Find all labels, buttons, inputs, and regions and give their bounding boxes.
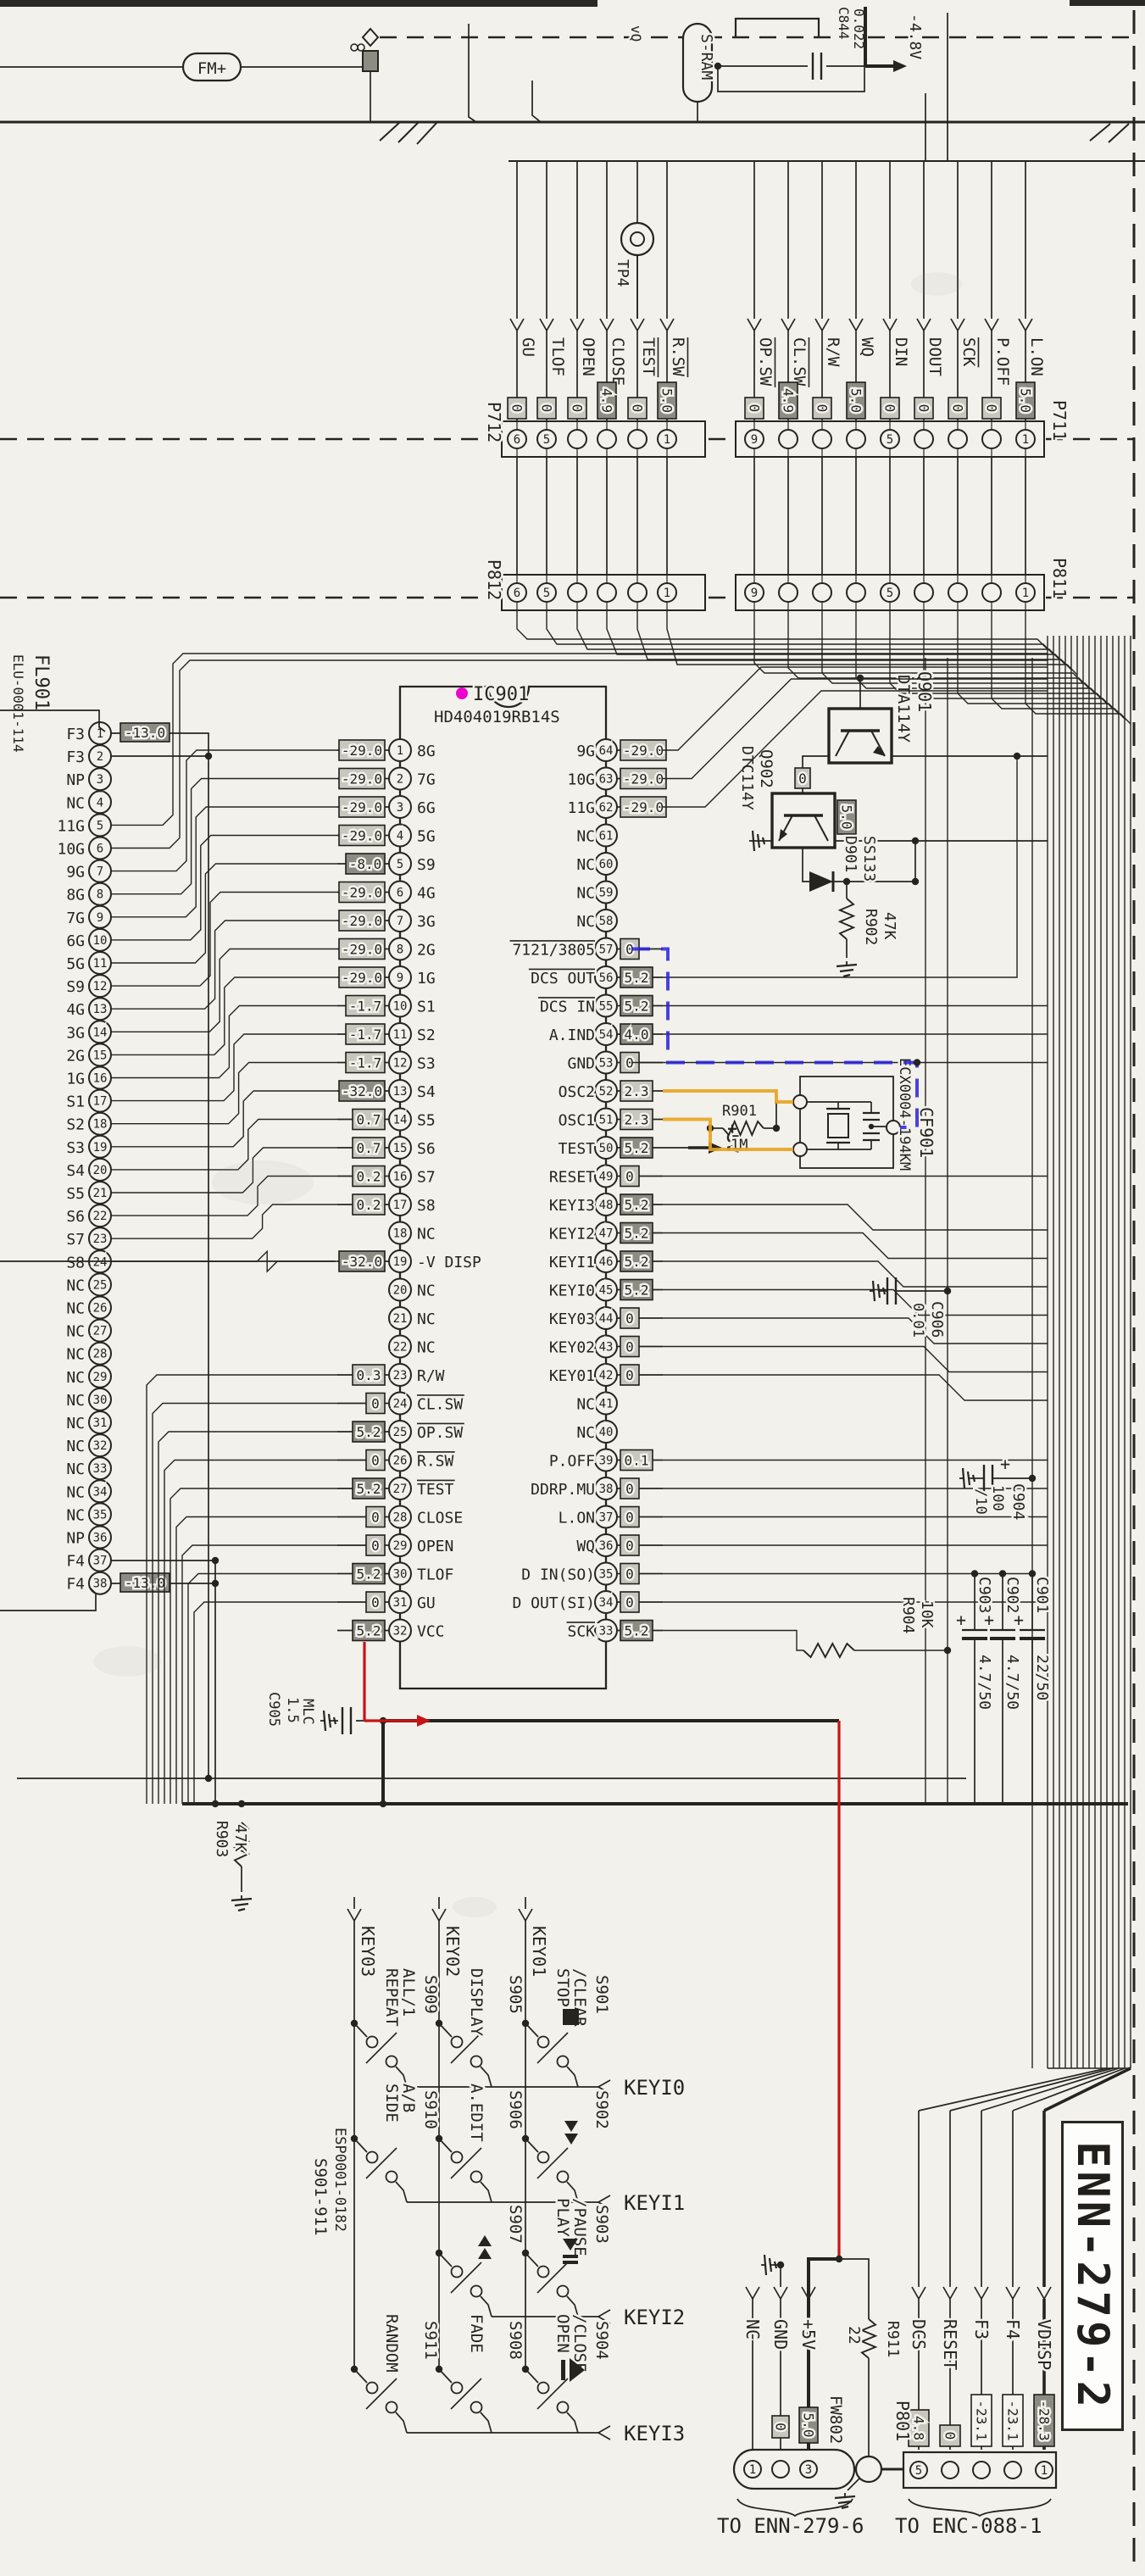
svg-text:OPEN: OPEN	[579, 337, 598, 376]
svg-text:DCS: DCS	[909, 2319, 929, 2350]
svg-text:KEY02: KEY02	[442, 1926, 463, 1977]
svg-text:NC: NC	[742, 2319, 763, 2340]
svg-text:25: 25	[393, 1426, 408, 1439]
svg-text:3G: 3G	[66, 1024, 85, 1042]
svg-text:KEY03: KEY03	[549, 1310, 595, 1328]
svg-text:20: 20	[393, 1284, 408, 1298]
svg-text:2.3: 2.3	[625, 1111, 649, 1127]
svg-text:26: 26	[393, 1455, 408, 1468]
svg-text:23: 23	[93, 1232, 108, 1246]
svg-text:R903: R903	[213, 1821, 231, 1857]
svg-text:33: 33	[599, 1625, 614, 1639]
svg-text:22/50: 22/50	[1033, 1655, 1051, 1700]
schematic-page: FM+vQS-RAMC8440.022-4.8VGU0TLOF0OPEN0CLO…	[0, 0, 1145, 2576]
svg-text:VDISP: VDISP	[1034, 2319, 1054, 2370]
svg-text:-28.3: -28.3	[1036, 2400, 1052, 2440]
svg-text:-23.1: -23.1	[1004, 2400, 1020, 2440]
svg-text:L.ON: L.ON	[559, 1510, 595, 1527]
svg-text:21: 21	[93, 1187, 108, 1200]
svg-text:KEYI1: KEYI1	[624, 2191, 685, 2215]
svg-text:4.7/50: 4.7/50	[975, 1655, 993, 1710]
sheet-title: ENN-279-2	[1067, 2141, 1118, 2411]
svg-text:NC: NC	[66, 1506, 85, 1524]
svg-text:0: 0	[625, 1481, 634, 1497]
svg-text:0: 0	[625, 1367, 634, 1383]
svg-text:S8: S8	[66, 1254, 85, 1271]
svg-text:A.IND: A.IND	[549, 1027, 595, 1044]
svg-text:NC: NC	[66, 1277, 85, 1294]
svg-text:9: 9	[751, 587, 758, 600]
svg-text:19: 19	[393, 1255, 408, 1269]
svg-text:0: 0	[371, 1509, 380, 1525]
svg-text:0: 0	[625, 1509, 634, 1525]
svg-text:F4: F4	[1003, 2319, 1023, 2340]
svg-text:9G: 9G	[66, 864, 85, 882]
svg-text:S6: S6	[417, 1140, 436, 1158]
svg-text:GND: GND	[770, 2319, 791, 2350]
svg-text:1G: 1G	[66, 1071, 85, 1088]
svg-text:1: 1	[664, 433, 670, 447]
svg-text:51: 51	[599, 1114, 614, 1127]
svg-text:F4: F4	[66, 1553, 85, 1571]
svg-text:SIDE: SIDE	[382, 2084, 401, 2123]
svg-text:P.OFF: P.OFF	[993, 337, 1012, 386]
svg-text:1: 1	[664, 587, 670, 600]
svg-text:S907: S907	[506, 2205, 525, 2244]
svg-text:ESP0001-0182: ESP0001-0182	[331, 2128, 348, 2232]
svg-text:38: 38	[93, 1577, 108, 1591]
svg-text:4G: 4G	[66, 1001, 85, 1019]
svg-text:-29.0: -29.0	[623, 799, 664, 815]
svg-text:CLOSE: CLOSE	[417, 1510, 463, 1527]
svg-text:0.3: 0.3	[357, 1367, 381, 1383]
svg-text:PLAY: PLAY	[553, 2198, 572, 2237]
svg-text:KEYI0: KEYI0	[624, 2076, 685, 2100]
tp4: TP4	[614, 223, 653, 319]
svg-text:7121/3805: 7121/3805	[512, 942, 595, 960]
svg-text:OPEN: OPEN	[553, 2314, 572, 2353]
svg-text:-1.7: -1.7	[349, 1027, 382, 1043]
svg-text:C905: C905	[265, 1692, 282, 1727]
svg-text:KEYI0: KEYI0	[549, 1282, 595, 1300]
svg-text:5: 5	[887, 587, 893, 600]
svg-text:KEYI1: KEYI1	[549, 1254, 595, 1271]
svg-text:RESET: RESET	[549, 1169, 595, 1187]
connector-p812: P812651	[484, 457, 705, 610]
key-switch-S911: RANDOMS911	[351, 2314, 440, 2433]
svg-text:P801: P801	[892, 2401, 913, 2441]
svg-text:4: 4	[397, 830, 403, 843]
svg-text:DOUT: DOUT	[925, 337, 944, 376]
svg-text:39: 39	[599, 1455, 614, 1468]
svg-text:GU: GU	[417, 1594, 436, 1612]
svg-text:2G: 2G	[417, 942, 436, 960]
svg-text:NC: NC	[66, 1438, 85, 1455]
svg-text:-29.0: -29.0	[342, 827, 382, 843]
svg-text:SCK: SCK	[567, 1623, 595, 1641]
svg-text:0: 0	[881, 404, 898, 413]
key-switch-S902: S902	[522, 2090, 611, 2202]
svg-text:47: 47	[599, 1227, 614, 1241]
key-switch-S905: DISPLAYS905	[436, 1968, 525, 2087]
key-switch-S904: OPEN/CLOSES904	[522, 2314, 611, 2433]
svg-text:NC: NC	[576, 885, 595, 903]
svg-text:10: 10	[93, 934, 108, 948]
svg-text:11G: 11G	[57, 817, 85, 835]
svg-text:29: 29	[393, 1539, 408, 1553]
svg-text:R902: R902	[862, 909, 880, 945]
svg-text:-29.0: -29.0	[342, 970, 382, 986]
svg-text:3: 3	[97, 773, 103, 787]
svg-text:TEST: TEST	[417, 1481, 454, 1499]
svg-text:S901: S901	[592, 1975, 611, 2014]
svg-text:SS133: SS133	[860, 836, 878, 882]
svg-text:48: 48	[599, 1199, 614, 1212]
svg-text:0.01: 0.01	[909, 1303, 926, 1338]
svg-text:9: 9	[751, 433, 758, 447]
svg-text:37: 37	[599, 1511, 614, 1525]
svg-text:NC: NC	[576, 1396, 595, 1414]
key-switch-S906: A.EDITS906	[436, 2084, 525, 2202]
svg-text:8: 8	[397, 943, 403, 957]
svg-text:R904: R904	[899, 1597, 917, 1633]
svg-text:TLOF: TLOF	[548, 337, 567, 376]
svg-text:P812: P812	[484, 559, 504, 600]
caps-right: 0.01C906+/10100C904+C9034.7/50+C9024.7/5…	[870, 1277, 1051, 1804]
svg-text:21: 21	[393, 1312, 408, 1326]
svg-text:DIN: DIN	[892, 337, 910, 366]
svg-text:2G: 2G	[66, 1047, 85, 1065]
power-rails	[17, 1717, 1128, 1807]
svg-text:42: 42	[599, 1369, 614, 1383]
svg-text:0: 0	[746, 404, 762, 413]
svg-text:0.1: 0.1	[625, 1452, 649, 1468]
svg-text:ECX0004-194KM: ECX0004-194KM	[896, 1058, 913, 1171]
svg-text:S905: S905	[506, 1975, 525, 2014]
svg-text:NC: NC	[66, 1346, 85, 1364]
svg-text:5.2: 5.2	[357, 1566, 381, 1582]
svg-text:S2: S2	[66, 1116, 85, 1134]
svg-text:NC: NC	[66, 1369, 85, 1387]
svg-text:ELU-0001-114: ELU-0001-114	[10, 654, 26, 753]
svg-text:5.2: 5.2	[625, 1197, 649, 1213]
svg-text:-23.1: -23.1	[973, 2400, 989, 2440]
key-switch-S907: S907	[436, 2205, 525, 2317]
svg-text:0: 0	[915, 404, 931, 413]
svg-text:S903: S903	[592, 2205, 611, 2244]
svg-text:15: 15	[93, 1049, 108, 1062]
connector-p711: OP.SW0CL.SW4.9R/W0WQ5.0DIN0DOUT0SCK0P.OF…	[736, 161, 1070, 457]
svg-text:S7: S7	[417, 1169, 436, 1187]
svg-text:C901: C901	[1033, 1577, 1051, 1613]
svg-text:45: 45	[599, 1284, 614, 1298]
svg-text:C904: C904	[1009, 1483, 1027, 1520]
svg-text:27: 27	[393, 1483, 408, 1496]
svg-text:12: 12	[93, 980, 108, 993]
scan-artifacts	[93, 272, 962, 1917]
svg-text:S9: S9	[417, 856, 436, 874]
key-switch-S909: REPEATALL/1S909	[351, 1968, 440, 2087]
svg-text:NP: NP	[66, 771, 85, 789]
svg-text:C902: C902	[1003, 1577, 1021, 1613]
svg-text:/10: /10	[972, 1488, 989, 1515]
svg-text:OSC1: OSC1	[559, 1112, 595, 1130]
svg-text:0: 0	[625, 1310, 634, 1327]
svg-text:20: 20	[93, 1164, 108, 1177]
svg-text:-8.0: -8.0	[349, 856, 382, 872]
svg-text:S5: S5	[417, 1112, 436, 1130]
svg-text:F3: F3	[66, 726, 85, 743]
svg-text:P811: P811	[1049, 558, 1070, 598]
svg-text:61: 61	[599, 830, 614, 843]
svg-text:0: 0	[942, 2432, 958, 2440]
svg-text:10K: 10K	[918, 1600, 936, 1628]
svg-text:S5: S5	[66, 1185, 85, 1203]
svg-text:56: 56	[599, 971, 614, 985]
svg-text:5.2: 5.2	[625, 998, 649, 1014]
svg-text:24: 24	[93, 1255, 108, 1269]
svg-text:0.2: 0.2	[357, 1197, 381, 1213]
svg-text:C844: C844	[836, 7, 852, 40]
svg-text:2: 2	[397, 773, 403, 787]
svg-text:9: 9	[397, 971, 403, 985]
svg-text:KEYI2: KEYI2	[549, 1226, 595, 1243]
svg-text:S902: S902	[592, 2090, 611, 2129]
svg-text:MLC: MLC	[299, 1699, 316, 1725]
svg-text:34: 34	[93, 1485, 108, 1499]
svg-text:KEY02: KEY02	[549, 1339, 595, 1357]
svg-text:DTC114Y: DTC114Y	[738, 746, 756, 810]
svg-text:RANDOM: RANDOM	[382, 2314, 401, 2373]
svg-text:R/W: R/W	[824, 337, 842, 367]
svg-text:NC: NC	[417, 1339, 436, 1357]
svg-text:5.2: 5.2	[357, 1481, 381, 1497]
svg-text:7G: 7G	[66, 910, 85, 927]
svg-text:33: 33	[93, 1462, 108, 1476]
svg-text:OP.SW: OP.SW	[756, 337, 775, 387]
svg-text:NC: NC	[417, 1310, 436, 1328]
svg-text:4G: 4G	[417, 885, 436, 903]
svg-text:NC: NC	[66, 1323, 85, 1341]
svg-text:S910: S910	[421, 2090, 440, 2129]
svg-text:IC901: IC901	[473, 684, 529, 705]
svg-text:41: 41	[599, 1398, 614, 1411]
cf901: R9011MECX0004-194KMCF901	[707, 1058, 937, 1171]
svg-text:4: 4	[97, 796, 103, 810]
svg-text:55: 55	[599, 1000, 614, 1014]
svg-text:0: 0	[772, 2423, 788, 2431]
svg-text:5.0: 5.0	[848, 388, 864, 413]
svg-text:5.2: 5.2	[625, 1282, 649, 1298]
svg-text:5.2: 5.2	[625, 1140, 649, 1156]
svg-text:18: 18	[393, 1227, 408, 1241]
svg-text:0: 0	[983, 404, 999, 413]
svg-text:0: 0	[625, 1168, 634, 1184]
svg-text:30: 30	[93, 1394, 108, 1407]
svg-text:S7: S7	[66, 1231, 85, 1249]
svg-text:SCK: SCK	[959, 337, 978, 367]
svg-text:P.OFF: P.OFF	[549, 1453, 595, 1471]
svg-text:100: 100	[989, 1485, 1006, 1511]
svg-text:-V DISP: -V DISP	[417, 1254, 481, 1271]
svg-text:S-RAM: S-RAM	[698, 34, 715, 80]
svg-text:6: 6	[397, 887, 403, 900]
key-switch-S910: SIDEA/BS910	[351, 2084, 440, 2202]
svg-text:15: 15	[393, 1142, 408, 1155]
svg-text:6: 6	[514, 587, 520, 600]
svg-text:A.EDIT: A.EDIT	[467, 2084, 486, 2142]
svg-text:0: 0	[569, 404, 585, 413]
svg-text:4.7/50: 4.7/50	[1003, 1655, 1021, 1710]
svg-text:NC: NC	[417, 1226, 436, 1243]
svg-text:5.0: 5.0	[1017, 388, 1033, 413]
svg-text:0.7: 0.7	[357, 1140, 381, 1156]
svg-text:6: 6	[97, 843, 103, 856]
bottom-left-connector: NCGND+5V05.0FW80213	[734, 2255, 854, 2516]
svg-text:-29.0: -29.0	[342, 884, 382, 900]
svg-text:D OUT(SI): D OUT(SI)	[512, 1594, 595, 1612]
svg-text:S911: S911	[421, 2321, 440, 2360]
svg-text:5: 5	[397, 858, 403, 871]
svg-text:4.0: 4.0	[625, 1027, 649, 1043]
sheet-title-box: ENN-279-2	[1061, 2121, 1124, 2431]
svg-text:13: 13	[93, 1003, 108, 1016]
svg-text:0: 0	[625, 1566, 634, 1582]
svg-text:0: 0	[798, 771, 807, 787]
svg-text:R/W: R/W	[417, 1367, 445, 1385]
svg-text:1.5: 1.5	[284, 1697, 301, 1723]
svg-text:10: 10	[393, 1000, 408, 1014]
svg-text:5.2: 5.2	[625, 970, 649, 986]
svg-text:0: 0	[371, 1452, 380, 1468]
svg-text:9G: 9G	[576, 743, 595, 760]
svg-text:S9: S9	[66, 978, 85, 996]
svg-text:NC: NC	[66, 1415, 85, 1433]
svg-text:CL.SW: CL.SW	[790, 337, 809, 387]
svg-text:14: 14	[393, 1114, 408, 1127]
svg-text:NC: NC	[417, 1282, 436, 1300]
svg-text:DCS IN: DCS IN	[540, 999, 595, 1016]
svg-text:+: +	[1000, 1454, 1010, 1474]
svg-text:0.2: 0.2	[357, 1168, 381, 1184]
svg-text:F3: F3	[971, 2319, 992, 2340]
svg-text:+: +	[956, 1610, 966, 1630]
svg-text:S2: S2	[417, 1027, 436, 1044]
top-section: FM+vQS-RAMC8440.022-4.8V	[0, 7, 1145, 161]
svg-text:NC: NC	[576, 856, 595, 874]
key-switch-S908: FADES908	[436, 2314, 525, 2433]
svg-text:53: 53	[599, 1057, 614, 1071]
svg-text:R911: R911	[884, 2321, 902, 2357]
key-switch-S901: STOP/CLEARS901	[522, 1968, 611, 2087]
svg-text:49: 49	[599, 1171, 614, 1184]
svg-text:R901: R901	[722, 1103, 757, 1120]
svg-text:-29.0: -29.0	[342, 799, 382, 815]
svg-text:-13.0: -13.0	[125, 1575, 165, 1591]
svg-text:0: 0	[814, 404, 830, 413]
svg-text:36: 36	[93, 1532, 108, 1545]
svg-text:28: 28	[393, 1511, 408, 1525]
svg-text:FW802: FW802	[826, 2395, 845, 2444]
svg-text:-29.0: -29.0	[342, 913, 382, 929]
svg-text:S1: S1	[66, 1093, 85, 1111]
svg-text:62: 62	[599, 801, 614, 815]
svg-text:FM+: FM+	[197, 59, 226, 78]
caption-to-enc-088-1: TO ENC-088-1	[895, 2514, 1042, 2538]
svg-text:GND: GND	[567, 1055, 595, 1073]
svg-text:17: 17	[93, 1095, 108, 1109]
svg-text:-1.7: -1.7	[349, 1054, 382, 1071]
r911-junction: 22R911	[835, 2259, 903, 2508]
svg-text:0: 0	[371, 1538, 380, 1554]
svg-text:TLOF: TLOF	[417, 1566, 453, 1584]
svg-text:D901: D901	[842, 836, 859, 872]
svg-text:S901-911: S901-911	[311, 2158, 330, 2236]
svg-text:DISPLAY: DISPLAY	[467, 1968, 486, 2037]
svg-text:-29.0: -29.0	[623, 743, 664, 759]
svg-text:4.9: 4.9	[598, 388, 614, 413]
svg-text:-32.0: -32.0	[342, 1083, 382, 1099]
svg-text:5.0: 5.0	[838, 805, 854, 830]
svg-text:-32.0: -32.0	[342, 1254, 382, 1270]
svg-text:44: 44	[599, 1312, 614, 1326]
svg-text:1: 1	[1022, 433, 1029, 447]
svg-text:30: 30	[393, 1568, 408, 1582]
svg-text:6G: 6G	[417, 799, 436, 817]
svg-text:RESET: RESET	[940, 2319, 960, 2370]
svg-text:13: 13	[393, 1085, 408, 1099]
svg-text:25: 25	[93, 1278, 108, 1292]
connector-p811: P811951	[736, 457, 1070, 610]
svg-text:+: +	[984, 1610, 994, 1630]
svg-text:0: 0	[371, 1395, 380, 1411]
svg-text:1: 1	[1022, 587, 1029, 600]
svg-text:8G: 8G	[417, 743, 436, 760]
svg-text:ALL/1: ALL/1	[399, 1968, 418, 2017]
svg-text:28: 28	[93, 1348, 108, 1361]
svg-text:18: 18	[93, 1118, 108, 1132]
svg-text:-29.0: -29.0	[623, 771, 664, 787]
svg-text:5.2: 5.2	[357, 1622, 381, 1639]
svg-text:22: 22	[93, 1210, 108, 1223]
svg-text:5: 5	[887, 433, 893, 447]
svg-text:10G: 10G	[57, 841, 85, 859]
svg-text:5.0: 5.0	[659, 388, 675, 413]
svg-text:12: 12	[393, 1057, 408, 1071]
svg-text:0: 0	[371, 1594, 380, 1611]
svg-text:26: 26	[93, 1302, 108, 1316]
svg-text:63: 63	[599, 773, 614, 787]
svg-text:NC: NC	[576, 913, 595, 931]
svg-text:5: 5	[97, 819, 103, 832]
svg-text:1: 1	[1041, 2464, 1048, 2478]
svg-text:40: 40	[599, 1426, 614, 1439]
svg-text:CF901: CF901	[916, 1107, 937, 1158]
svg-text:3: 3	[397, 801, 403, 815]
svg-text:CLOSE: CLOSE	[609, 337, 627, 386]
svg-text:L.ON: L.ON	[1027, 337, 1046, 376]
svg-text:0: 0	[625, 1594, 634, 1611]
svg-text:P712: P712	[484, 402, 504, 442]
svg-text:NC: NC	[66, 1392, 85, 1410]
vcc-c905-r903: C9051.5MLCR90347K	[213, 1692, 383, 1911]
svg-text:60: 60	[599, 858, 614, 871]
svg-text:-29.0: -29.0	[342, 771, 382, 787]
svg-text:DTA114Y: DTA114Y	[894, 675, 913, 743]
svg-text:S4: S4	[417, 1083, 436, 1101]
svg-text:S3: S3	[66, 1139, 85, 1157]
svg-text:64: 64	[599, 744, 614, 758]
